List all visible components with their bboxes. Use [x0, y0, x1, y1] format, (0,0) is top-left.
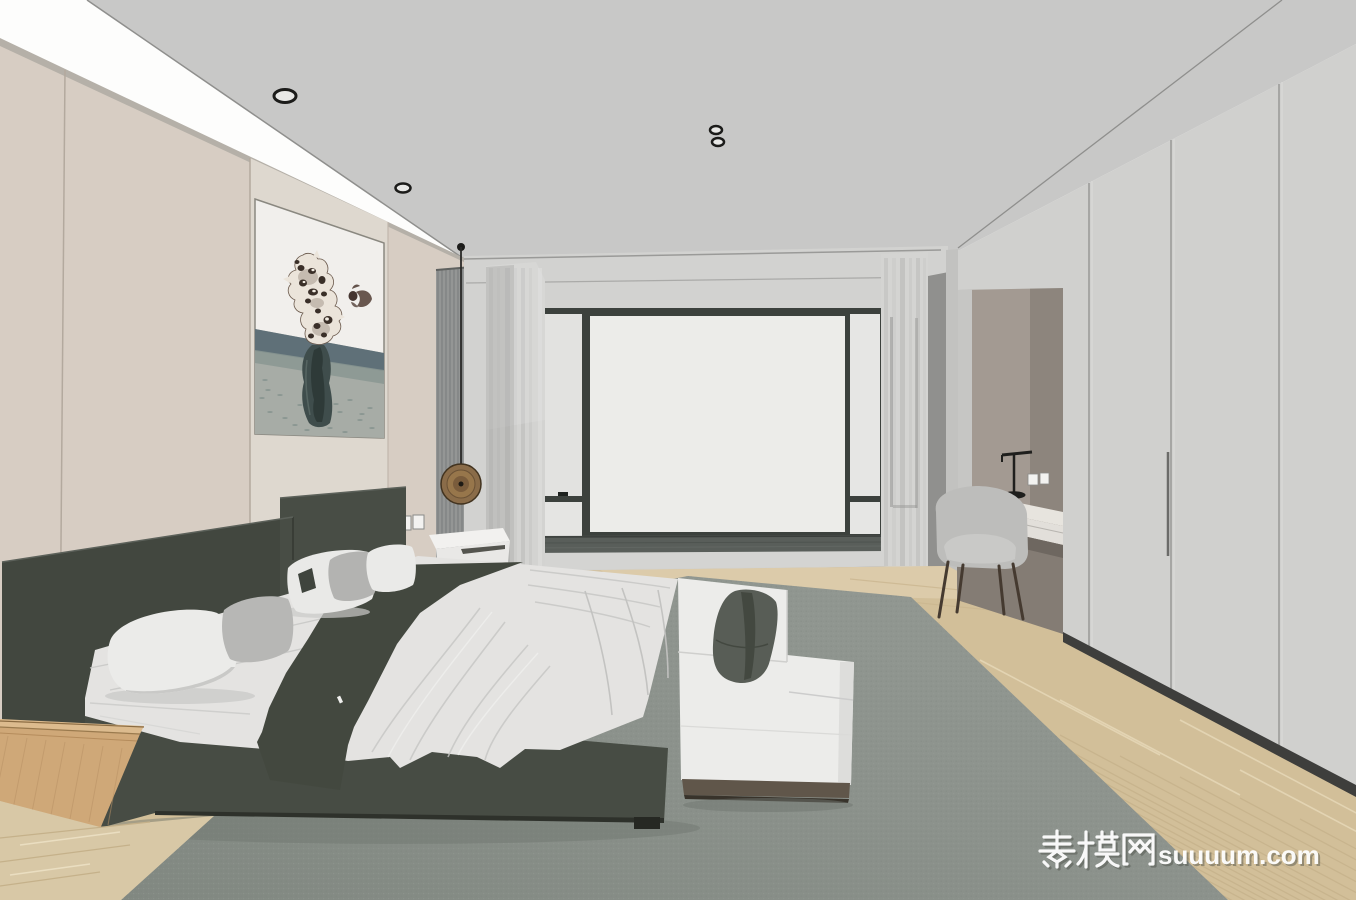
svg-text:suuuum.com: suuuum.com: [1158, 840, 1320, 870]
